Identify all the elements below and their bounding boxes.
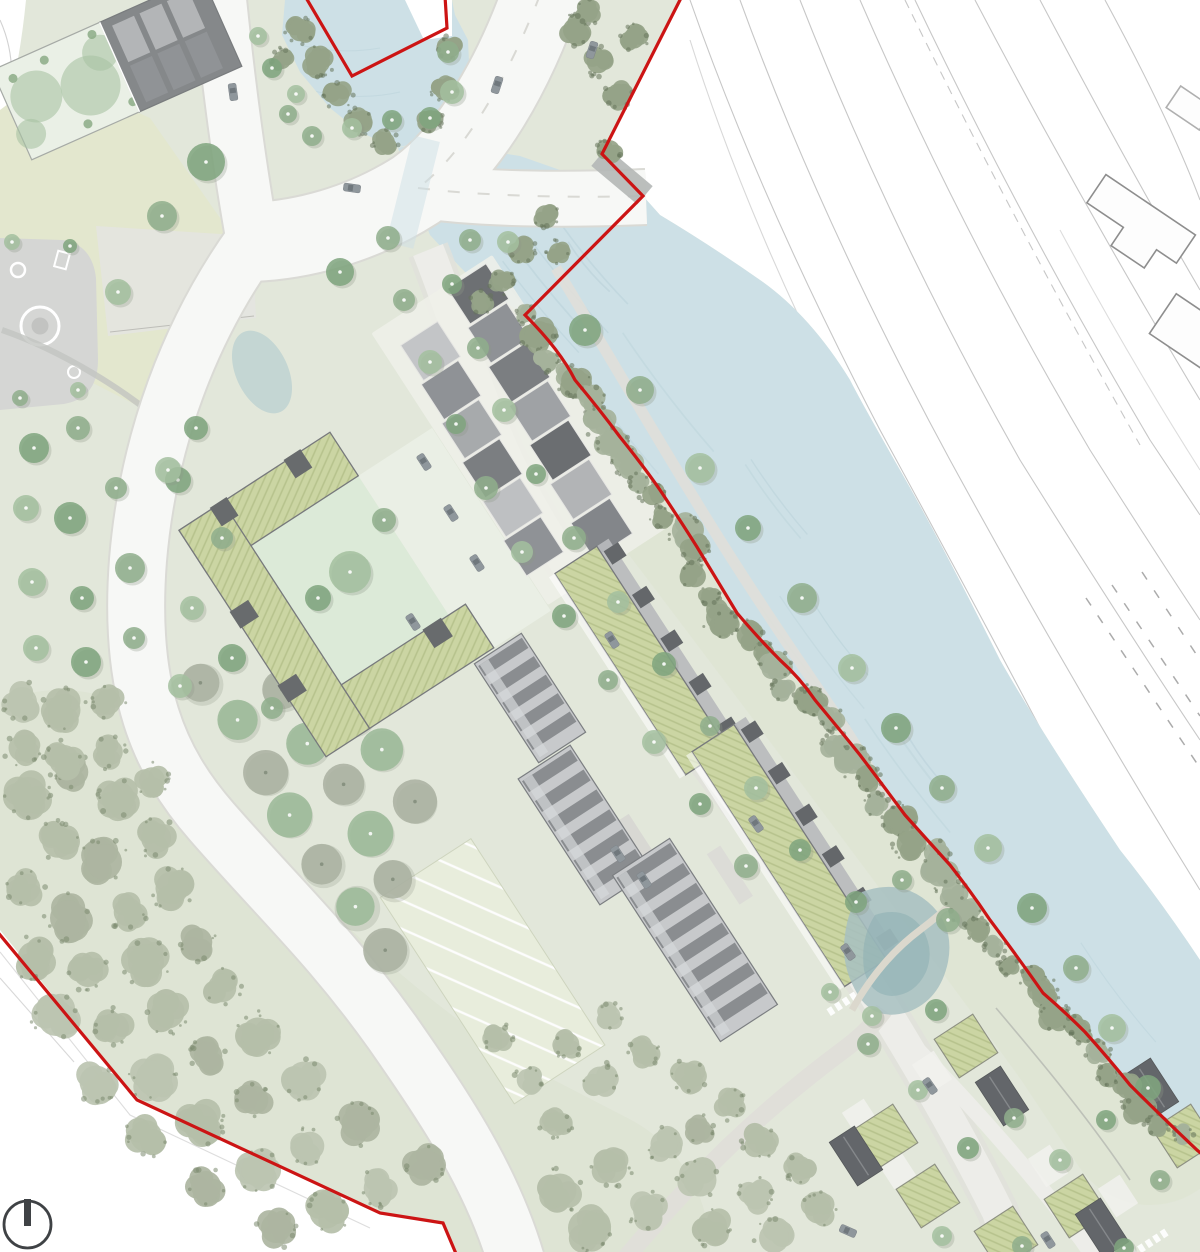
orchard-tree-icon [393,779,438,824]
tree-icon [96,778,140,822]
orchard-tree-icon [335,886,381,932]
masterplan-canvas [0,0,1200,1252]
site-plan-drawing [0,0,1200,1252]
orchard-tree-icon [374,860,416,902]
